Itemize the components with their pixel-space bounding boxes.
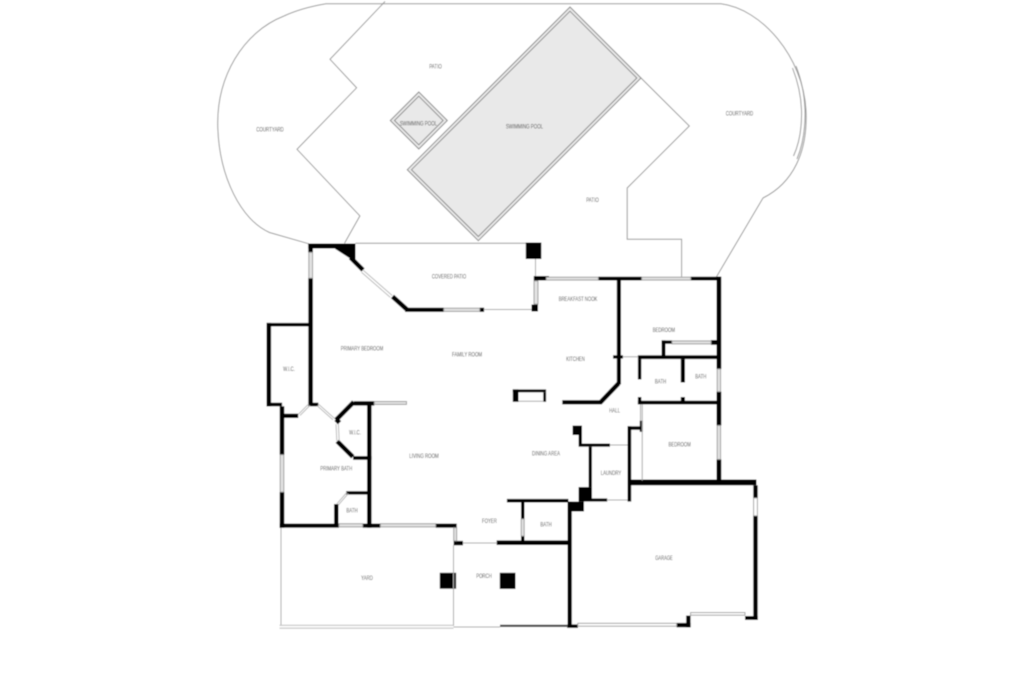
svg-text:LIVING ROOM: LIVING ROOM (409, 453, 439, 460)
svg-text:BATH: BATH (655, 379, 666, 386)
svg-text:HALL: HALL (609, 408, 620, 415)
svg-text:PRIMARY BATH: PRIMARY BATH (320, 466, 352, 473)
svg-text:FAMILY ROOM: FAMILY ROOM (452, 352, 482, 359)
svg-text:YARD: YARD (361, 575, 373, 582)
svg-text:BEDROOM: BEDROOM (653, 327, 675, 334)
svg-text:BATH: BATH (346, 508, 357, 515)
svg-text:BATH: BATH (695, 374, 706, 381)
svg-text:SWIMMING POOL: SWIMMING POOL (400, 121, 438, 128)
svg-text:COURTYARD: COURTYARD (256, 127, 284, 134)
svg-text:SWIMMING POOL: SWIMMING POOL (506, 124, 544, 131)
svg-text:GARAGE: GARAGE (655, 555, 673, 562)
svg-text:W.I.C.: W.I.C. (283, 366, 295, 373)
svg-text:BEDROOM: BEDROOM (669, 441, 691, 448)
svg-text:PORCH: PORCH (476, 573, 492, 580)
svg-text:PATIO: PATIO (586, 197, 599, 204)
svg-text:COVERED PATIO: COVERED PATIO (432, 274, 466, 281)
svg-text:COURTYARD: COURTYARD (726, 111, 754, 118)
svg-text:LAUNDRY: LAUNDRY (601, 470, 622, 477)
svg-text:FOYER: FOYER (482, 518, 497, 525)
svg-text:BATH: BATH (540, 521, 551, 528)
svg-text:BREAKFAST NOOK: BREAKFAST NOOK (559, 296, 598, 303)
svg-text:PRIMARY BEDROOM: PRIMARY BEDROOM (341, 346, 384, 353)
svg-text:DINING AREA: DINING AREA (532, 451, 561, 458)
svg-text:PATIO: PATIO (429, 64, 442, 71)
svg-text:KITCHEN: KITCHEN (566, 356, 585, 363)
svg-text:W.I.C.: W.I.C. (349, 429, 361, 436)
